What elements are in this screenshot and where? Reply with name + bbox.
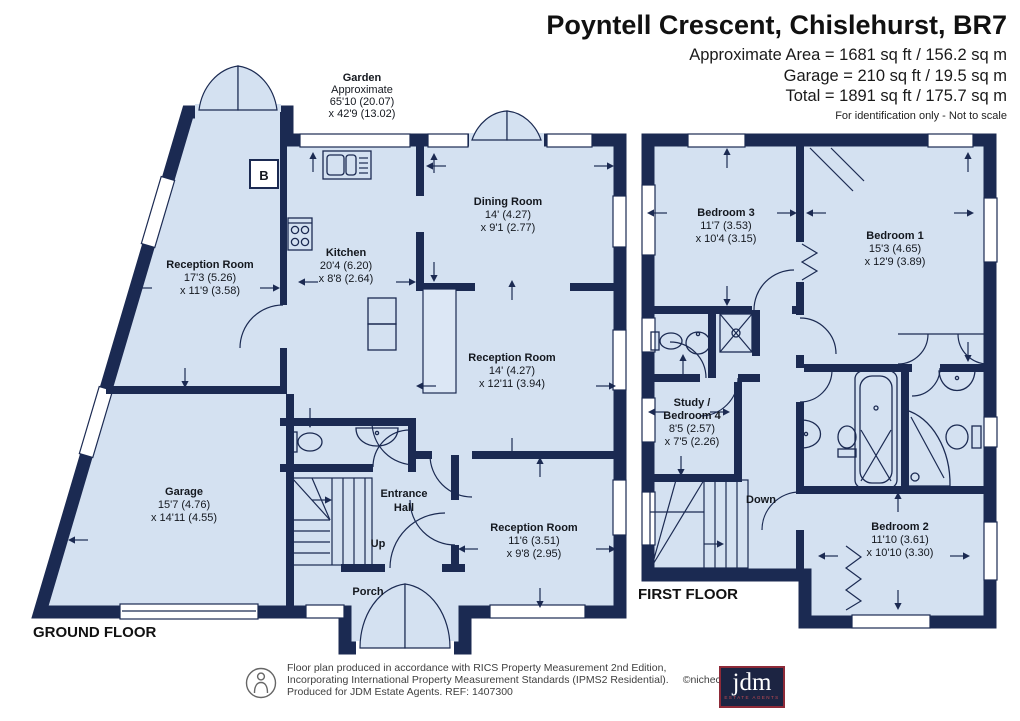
label-reception3-d2: x 9'8 (2.95) xyxy=(507,548,562,560)
label-reception1-d1: 17'3 (5.26) xyxy=(184,272,236,284)
label-up: Up xyxy=(371,538,386,550)
label-bedroom2-d1: 11'10 (3.61) xyxy=(871,534,929,546)
label-bedroom2-name: Bedroom 2 xyxy=(871,521,928,533)
footer-line2-text: Incorporating International Property Mea… xyxy=(287,674,669,686)
garden-l3: x 42'9 (13.02) xyxy=(329,108,396,120)
garden-l1: Approximate xyxy=(331,84,393,96)
disclaimer: For identification only - Not to scale xyxy=(546,110,1007,122)
header: Poyntell Crescent, Chislehurst, BR7 Appr… xyxy=(546,10,1007,122)
jdm-logo-subtext: ESTATE AGENTS xyxy=(721,695,783,701)
label-reception2-d1: 14' (4.27) xyxy=(489,365,535,377)
label-entrance-hall-2: Hall xyxy=(394,502,414,514)
garden-name: Garden xyxy=(343,72,382,84)
label-garage-d2: x 14'11 (4.55) xyxy=(151,512,217,524)
footer-line3: Produced for JDM Estate Agents. REF: 140… xyxy=(287,687,765,699)
garage-area: Garage = 210 sq ft / 19.5 sq m xyxy=(546,66,1007,87)
area-summary: Approximate Area = 1681 sq ft / 156.2 sq… xyxy=(546,45,1007,107)
jdm-logo: jdm ESTATE AGENTS xyxy=(719,666,785,708)
garden-l2: 65'10 (20.07) xyxy=(330,96,394,108)
ground-floor-plan: Reception Room 17'3 (5.26) x 11'9 (3.58)… xyxy=(33,66,626,656)
label-study-d1: 8'5 (2.57) xyxy=(669,423,715,435)
label-kitchen-d1: 20'4 (6.20) xyxy=(320,260,372,272)
label-bedroom1-d2: x 12'9 (3.89) xyxy=(865,256,926,268)
label-bedroom3-d1: 11'7 (3.53) xyxy=(700,220,751,232)
footer-text: Floor plan produced in accordance with R… xyxy=(287,663,765,698)
person-scale-icon xyxy=(245,663,278,707)
label-garage-d1: 15'7 (4.76) xyxy=(158,499,210,511)
label-bedroom1-d1: 15'3 (4.65) xyxy=(869,243,921,255)
label-boiler: B xyxy=(259,168,268,183)
label-entrance-hall-1: Entrance xyxy=(380,488,427,500)
label-reception2-d2: x 12'11 (3.94) xyxy=(479,378,545,390)
label-study-d2: x 7'5 (2.26) xyxy=(665,436,720,448)
first-floor-plan: Bedroom 3 11'7 (3.53) x 10'4 (3.15) Bedr… xyxy=(638,134,997,628)
label-reception1-name: Reception Room xyxy=(166,259,254,271)
footer-line2: Incorporating International Property Mea… xyxy=(287,675,765,687)
label-study-name2: Bedroom 4 xyxy=(663,410,721,422)
floorplan-page: Poyntell Crescent, Chislehurst, BR7 Appr… xyxy=(0,0,1020,721)
garden-label: Garden Approximate 65'10 (20.07) x 42'9 … xyxy=(329,72,396,120)
label-dining-d2: x 9'1 (2.77) xyxy=(481,222,536,234)
label-reception2-name: Reception Room xyxy=(468,352,556,364)
label-reception3-d1: 11'6 (3.51) xyxy=(508,535,559,547)
label-porch: Porch xyxy=(352,586,383,598)
label-reception3-name: Reception Room xyxy=(490,522,578,534)
footer: Floor plan produced in accordance with R… xyxy=(245,663,765,707)
jdm-logo-text: jdm xyxy=(721,670,783,695)
label-dining-name: Dining Room xyxy=(474,196,543,208)
page-title: Poyntell Crescent, Chislehurst, BR7 xyxy=(546,10,1007,40)
label-kitchen-name: Kitchen xyxy=(326,247,367,259)
label-reception1-d2: x 11'9 (3.58) xyxy=(180,285,240,297)
label-bedroom3-d2: x 10'4 (3.15) xyxy=(696,233,757,245)
garage-door xyxy=(120,604,258,619)
label-bedroom3-name: Bedroom 3 xyxy=(697,207,754,219)
approximate-area: Approximate Area = 1681 sq ft / 156.2 sq… xyxy=(546,45,1007,66)
first-floor-title: FIRST FLOOR xyxy=(638,586,738,603)
ground-floor-title: GROUND FLOOR xyxy=(33,624,156,641)
label-garage-name: Garage xyxy=(165,486,203,498)
label-study-name: Study / xyxy=(674,397,711,409)
label-down: Down xyxy=(746,494,776,506)
label-kitchen-d2: x 8'8 (2.64) xyxy=(319,273,374,285)
label-bedroom1-name: Bedroom 1 xyxy=(866,230,923,242)
label-dining-d1: 14' (4.27) xyxy=(485,209,531,221)
total-area: Total = 1891 sq ft / 175.7 sq m xyxy=(546,86,1007,107)
label-bedroom2-d2: x 10'10 (3.30) xyxy=(867,547,934,559)
